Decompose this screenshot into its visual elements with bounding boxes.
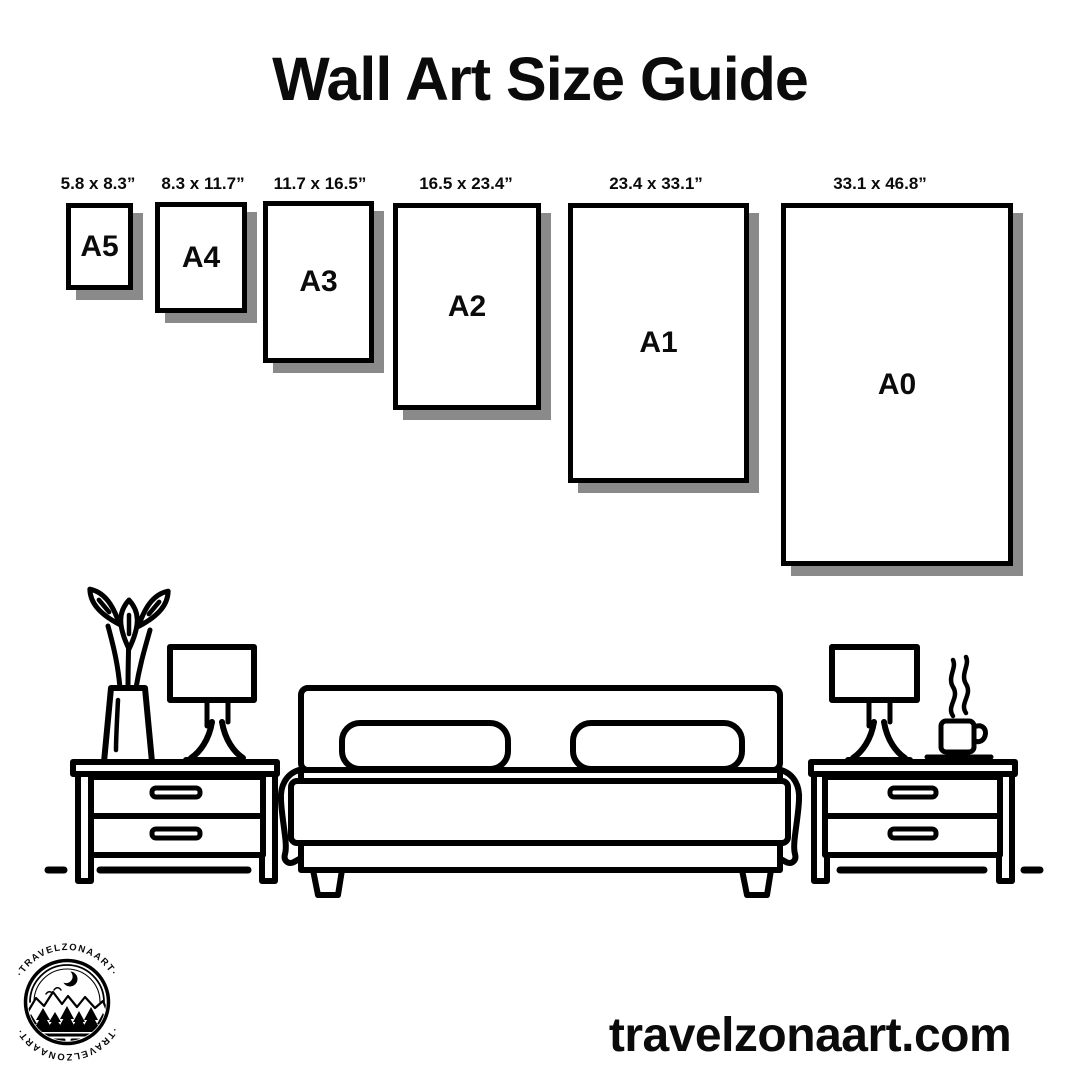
blanket-panel — [291, 781, 788, 843]
nightstand-left-icon — [73, 762, 277, 881]
steam-icon — [964, 657, 968, 713]
bed-leg-right — [742, 870, 771, 895]
bed-leg-left — [313, 870, 342, 895]
table-lamp-right-icon — [832, 647, 917, 760]
size-guide-poster: Wall Art Size Guide 5.8 x 8.3” 8.3 x 11.… — [0, 0, 1080, 1080]
moon-icon — [59, 970, 77, 987]
pillow-right-icon — [573, 723, 742, 769]
bed-icon — [281, 688, 799, 895]
table-lamp-left-icon — [170, 647, 254, 760]
drawer-handle — [890, 788, 936, 797]
website-url: travelzonaart.com — [609, 1008, 1011, 1063]
lamp-shade — [832, 647, 917, 700]
nightstand-right-icon — [811, 762, 1015, 881]
pillow-left-icon — [342, 723, 508, 769]
drawer-handle — [152, 829, 200, 838]
lamp-shade — [170, 647, 254, 700]
drawer-handle — [890, 829, 936, 838]
steam-icon — [951, 660, 955, 716]
plant-vase-icon — [85, 585, 173, 762]
bedroom-scene — [0, 0, 1080, 1080]
coffee-cup-icon — [927, 657, 991, 757]
drawer-handle — [152, 788, 200, 797]
vase — [104, 688, 152, 762]
brand-logo: ·TRAVELZONAART· ·TRAVELZONAART· — [6, 934, 130, 1064]
